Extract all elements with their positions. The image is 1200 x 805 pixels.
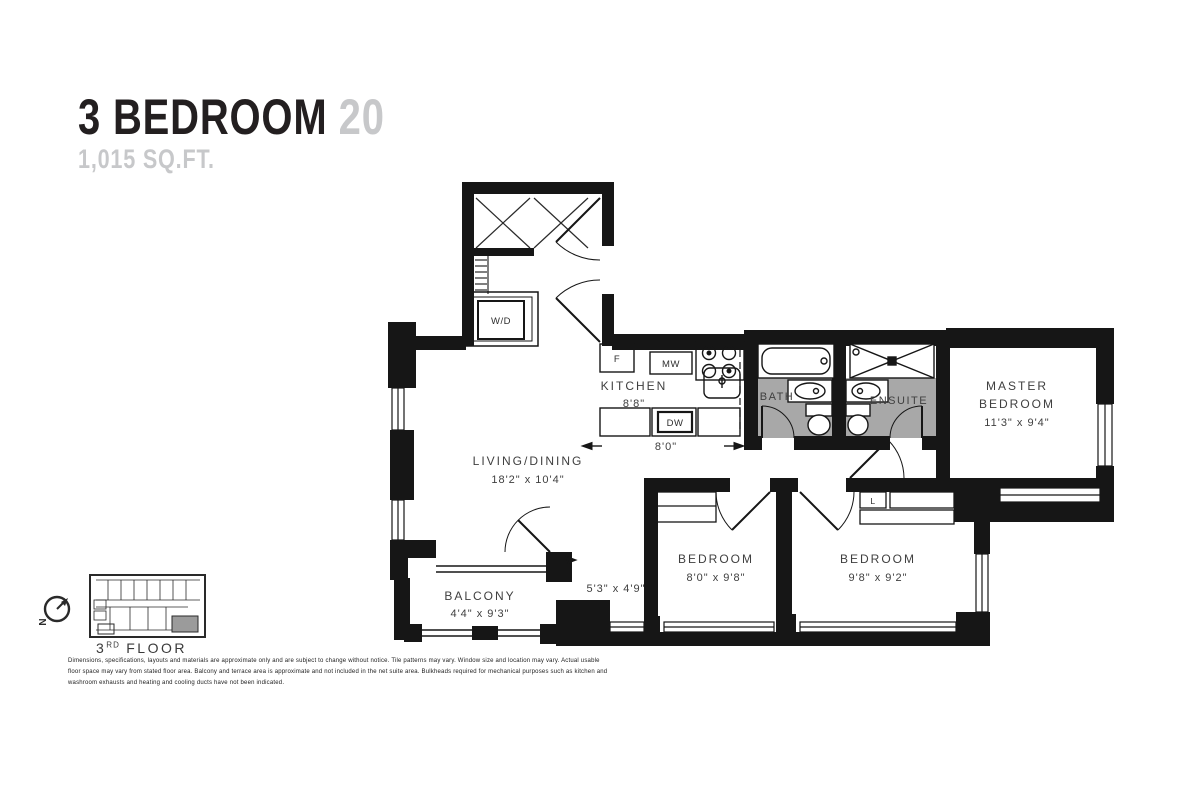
kitchen-dims: 8'8" <box>623 398 645 410</box>
living-dining-dims: 18'2" x 10'4" <box>491 474 564 486</box>
balcony-dims: 4'4" x 9'3" <box>450 608 509 620</box>
den-dims: 5'3" x 4'9" <box>586 583 645 595</box>
kitchen-width-dim: 8'0" <box>655 441 677 453</box>
balcony-label: BALCONY <box>444 589 515 603</box>
kitchen-label: KITCHEN <box>601 379 668 393</box>
floor-ordinal: RD <box>106 640 120 649</box>
keyplan-floor-label: 3RD FLOOR <box>96 640 187 656</box>
entry-closet <box>475 198 588 294</box>
linen-label: L <box>870 496 875 506</box>
north-label: N <box>38 618 49 625</box>
floor-word: FLOOR <box>126 640 187 656</box>
keyplan <box>90 575 205 637</box>
living-dining-label: LIVING/DINING <box>473 454 584 468</box>
north-arrow: N <box>38 597 69 626</box>
bedroom-left-label: BEDROOM <box>678 552 754 566</box>
bedroom-right-label: BEDROOM <box>840 552 916 566</box>
bedroom-right-dims: 9'8" x 9'2" <box>848 572 907 584</box>
floor-number: 3 <box>96 640 106 656</box>
washer-dryer: W/D <box>464 292 538 346</box>
master-bedroom-dims: 11'3" x 9'4" <box>984 417 1049 429</box>
ensuite-label: ENSUITE <box>870 395 928 407</box>
washer-dryer-label: W/D <box>491 316 511 327</box>
microwave-label: MW <box>662 359 680 370</box>
master-bedroom-label-line1: MASTER <box>986 379 1048 393</box>
disclaimer-text: Dimensions, specifications, layouts and … <box>68 656 608 688</box>
bath-label: BATH <box>760 391 795 403</box>
dishwasher-label: DW <box>667 418 684 429</box>
floorplan-page: 3 BEDROOM20 1,015 SQ.FT. <box>0 0 1200 805</box>
walls <box>388 182 1114 646</box>
fridge-label: F <box>614 354 620 365</box>
master-bedroom-label-line2: BEDROOM <box>979 397 1055 411</box>
bedroom-left-dims: 8'0" x 9'8" <box>686 572 745 584</box>
